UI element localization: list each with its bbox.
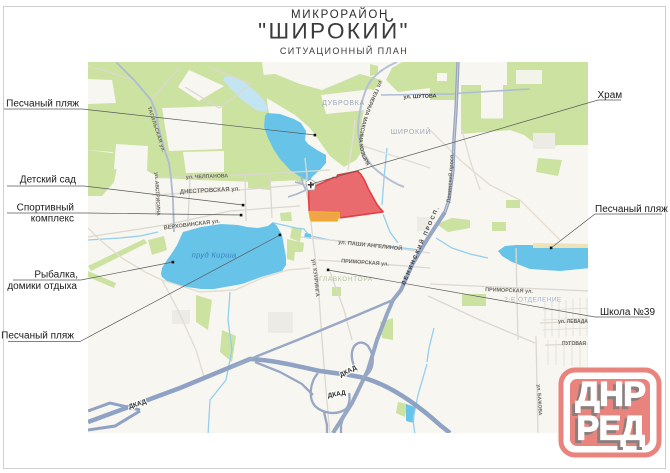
svg-text:пруд Кирша: пруд Кирша: [192, 251, 237, 260]
svg-text:комплекс: комплекс: [31, 214, 74, 225]
svg-text:Рыбалка,: Рыбалка,: [34, 269, 78, 281]
svg-text:ул. ЛЕВАДА: ул. ЛЕВАДА: [558, 319, 588, 325]
svg-text:ДНР: ДНР: [576, 376, 646, 414]
svg-text:ПУГОВАЯ: ПУГОВАЯ: [562, 341, 586, 347]
svg-text:Песчаный пляж: Песчаный пляж: [6, 99, 79, 110]
svg-text:ДУБРОВКА: ДУБРОВКА: [322, 100, 365, 107]
svg-text:Спортивный: Спортивный: [17, 203, 74, 214]
svg-text:Школа №39: Школа №39: [600, 307, 655, 318]
svg-text:ГЛАВКОНТОРА: ГЛАВКОНТОРА: [319, 276, 373, 283]
svg-text:Песчаный пляж: Песчаный пляж: [595, 204, 668, 215]
svg-text:домики отдыха: домики отдыха: [7, 281, 77, 292]
svg-text:Храм: Храм: [598, 90, 623, 101]
svg-text:ул. ШУТОВА: ул. ШУТОВА: [403, 93, 436, 100]
svg-text:ШИРОКИЙ: ШИРОКИЙ: [391, 127, 431, 136]
svg-text:Детский сад: Детский сад: [20, 175, 76, 186]
svg-text:"ШИРОКИЙ": "ШИРОКИЙ": [258, 19, 410, 44]
svg-text:РЕД: РЕД: [576, 410, 644, 448]
svg-text:СИТУАЦИОННЫЙ ПЛАН: СИТУАЦИОННЫЙ ПЛАН: [280, 45, 408, 56]
svg-text:Песчаный пляж: Песчаный пляж: [1, 331, 74, 342]
